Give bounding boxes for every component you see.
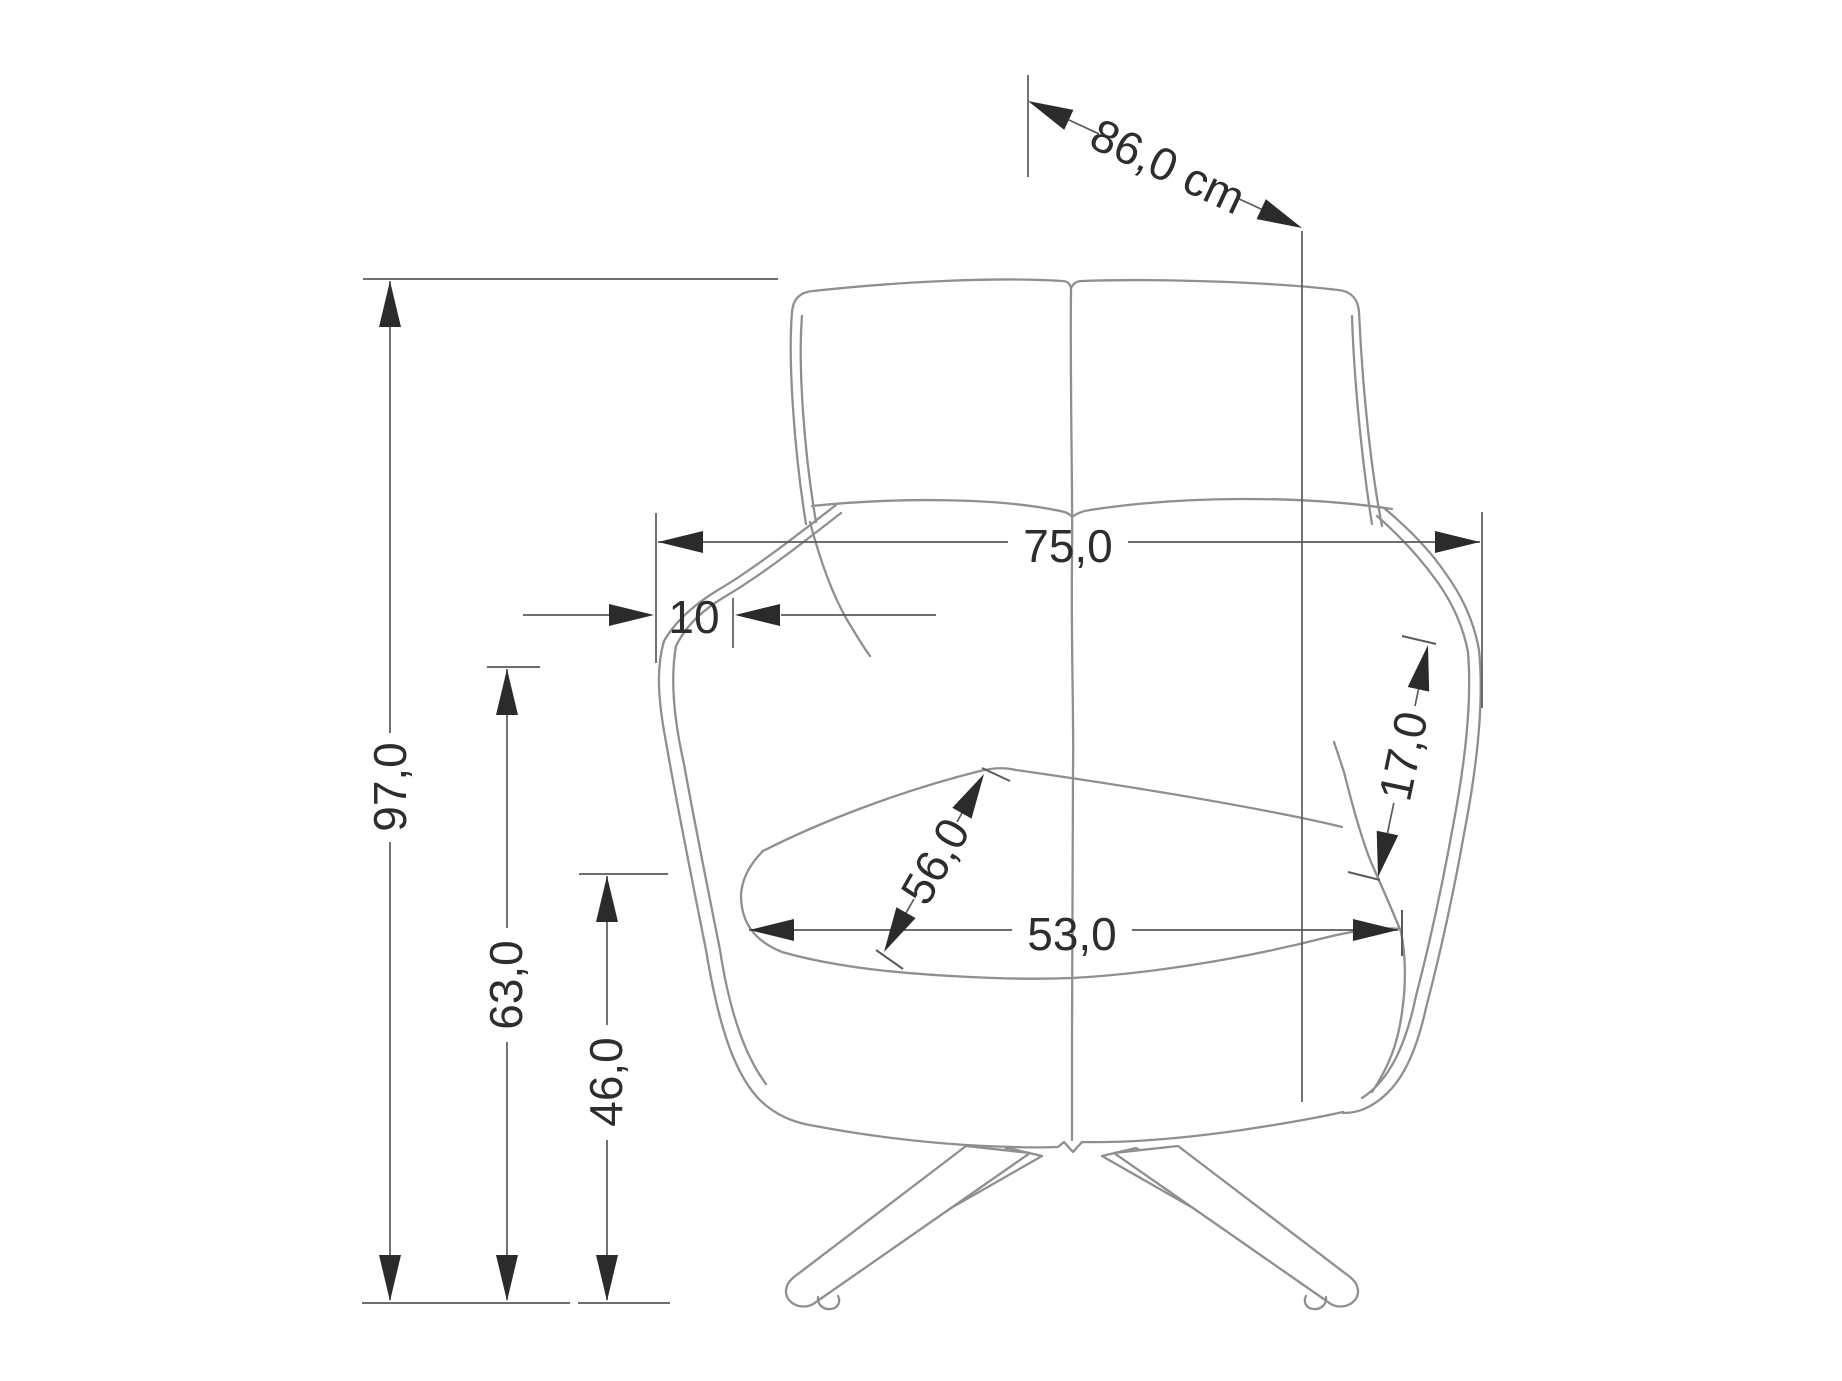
arrowhead [496,669,518,715]
arrowhead [952,774,984,819]
dimension-label-arm-top-width: 10 [668,591,719,643]
arrowhead [735,604,780,626]
arrowhead [1353,919,1398,941]
dimension-line [957,813,962,822]
dimension-label-wing-length: 17,0 [1368,707,1437,805]
dimension-armrest-height: 63,0 [480,667,540,1301]
dimension-seat-width: 53,0 [749,908,1402,960]
arrowhead [596,876,618,922]
dimension-seat-height: 46,0 [579,874,668,1301]
extension-tick [982,768,1010,781]
dimension-line [1388,803,1394,833]
arrowhead [1377,831,1399,877]
dimension-label-total-height: 97,0 [364,742,416,832]
dimension-label-depth: 86,0 cm [1083,108,1253,224]
center-seam [1071,288,1073,1140]
dimension-label-armrest-height: 63,0 [480,940,532,1030]
arrowhead [379,1255,401,1301]
backrest-seam [812,499,1392,517]
dimension-line [906,899,914,913]
dimension-line [1415,689,1419,706]
arrowhead [496,1255,518,1301]
arrowhead [379,281,401,327]
dimension-seat-depth: 56,0 [876,768,1010,969]
arrowhead [1028,101,1073,130]
arrowhead [658,531,703,553]
backrest-piping-left [801,316,816,522]
arrowhead [609,604,654,626]
dimension-label-seat-height: 46,0 [580,1037,632,1127]
seat-top-surface [763,768,1342,851]
right-arm-inner-edge [1362,516,1469,1098]
arrowhead [596,1255,618,1301]
right-arm-top-edge [1343,508,1481,1113]
arrowhead [1257,199,1302,228]
dimension-arm-top-width: 10 [523,591,936,648]
arrowhead [1408,645,1430,692]
front-right-leg [1114,1146,1358,1307]
dimension-label-seat-width: 53,0 [1027,908,1117,960]
front-left-leg [786,1146,1030,1307]
extension-tick [876,950,903,969]
dimension-label-total-width: 75,0 [1023,520,1113,572]
backrest-outline [791,279,1382,526]
dimension-label-seat-depth: 56,0 [890,809,980,913]
drawing-svg: 86,0 cm 97,0 63,0 46,0 75,0 [0,0,1842,1381]
body-bottom-edge [815,1112,1343,1152]
arrowhead [1435,531,1480,553]
chair-outline [659,279,1481,1309]
dimension-wing-length: 17,0 [1348,636,1438,880]
dimension-total-height: 97,0 [362,279,778,1303]
chair-dimension-drawing: 86,0 cm 97,0 63,0 46,0 75,0 [0,0,1842,1381]
extension-tick [1402,636,1436,644]
arrowhead [749,919,794,941]
